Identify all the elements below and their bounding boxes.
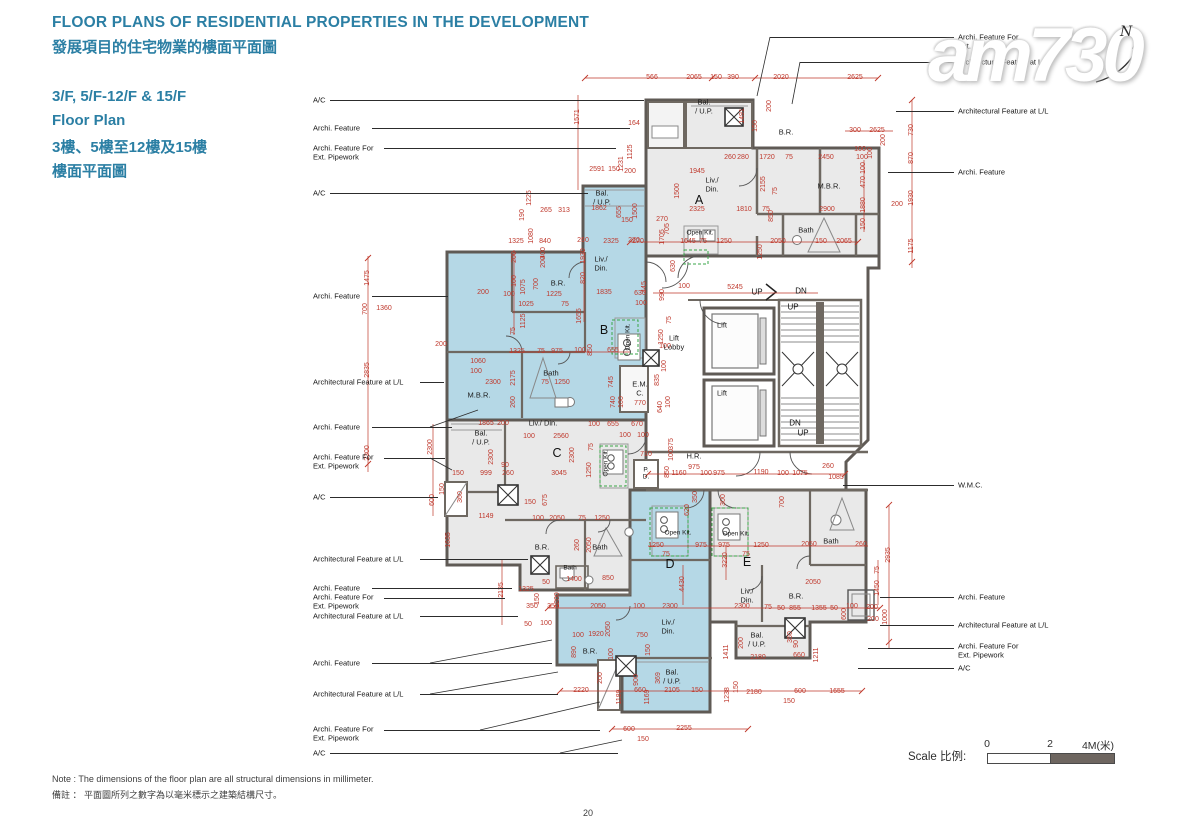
leader-line (384, 148, 616, 149)
leader-line (330, 753, 618, 754)
leader-line (420, 616, 518, 617)
leader-line (868, 648, 954, 649)
callout-label: A/C (313, 188, 326, 197)
leader-line (330, 193, 588, 194)
am730-watermark: am730 (928, 18, 1140, 94)
leader-line (880, 625, 954, 626)
callout-label: Archi. Feature (958, 592, 1005, 601)
north-arrow: N (1120, 24, 1132, 40)
callout-label: Archi. Feature For Ext. Pipework (313, 725, 373, 744)
leader-line (372, 427, 452, 428)
callout-label: Archi. Feature (958, 167, 1005, 176)
leader-line (858, 668, 954, 669)
brochure-page: FLOOR PLANS OF RESIDENTIAL PROPERTIES IN… (0, 0, 1180, 831)
callout-label: Architectural Feature at L/L (958, 620, 1048, 629)
leader-line (384, 730, 600, 731)
callout-label: A/C (313, 492, 326, 501)
callout-label: Architectural Feature at L/L (313, 689, 403, 698)
callout-label: Architectural Feature at L/L (958, 106, 1048, 115)
callout-label: Archi. Feature (313, 123, 360, 132)
callout-label: A/C (958, 663, 971, 672)
callout-layer: A/CArchi. FeatureArchi. Feature For Ext.… (0, 0, 1180, 831)
callout-label: Architectural Feature at L/L (313, 377, 403, 386)
leader-line (330, 497, 438, 498)
callout-label: Archi. Feature (313, 583, 360, 592)
leader-line (843, 485, 954, 486)
callout-label: Archi. Feature For Ext. Pipework (958, 642, 1018, 661)
leader-line (420, 694, 558, 695)
leader-line (420, 382, 444, 383)
leader-line (372, 663, 552, 664)
leader-line (384, 598, 505, 599)
callout-label: Archi. Feature (313, 658, 360, 667)
callout-label: Archi. Feature (313, 291, 360, 300)
leader-line (880, 597, 954, 598)
leader-line (372, 128, 630, 129)
leader-line (384, 458, 445, 459)
callout-label: Archi. Feature For Ext. Pipework (313, 453, 373, 472)
callout-label: A/C (313, 748, 326, 757)
callout-label: A/C (313, 95, 326, 104)
callout-label: Architectural Feature at L/L (313, 611, 403, 620)
leader-line (420, 559, 528, 560)
callout-label: W.M.C. (958, 480, 983, 489)
leader-line (888, 172, 954, 173)
callout-label: Archi. Feature For Ext. Pipework (313, 593, 373, 612)
leader-line (330, 100, 644, 101)
leader-line (896, 111, 954, 112)
leader-line (372, 296, 448, 297)
callout-label: Architectural Feature at L/L (313, 554, 403, 563)
callout-label: Archi. Feature (313, 422, 360, 431)
callout-label: Archi. Feature For Ext. Pipework (313, 144, 373, 163)
leader-line (372, 588, 512, 589)
leader-line (770, 37, 954, 38)
